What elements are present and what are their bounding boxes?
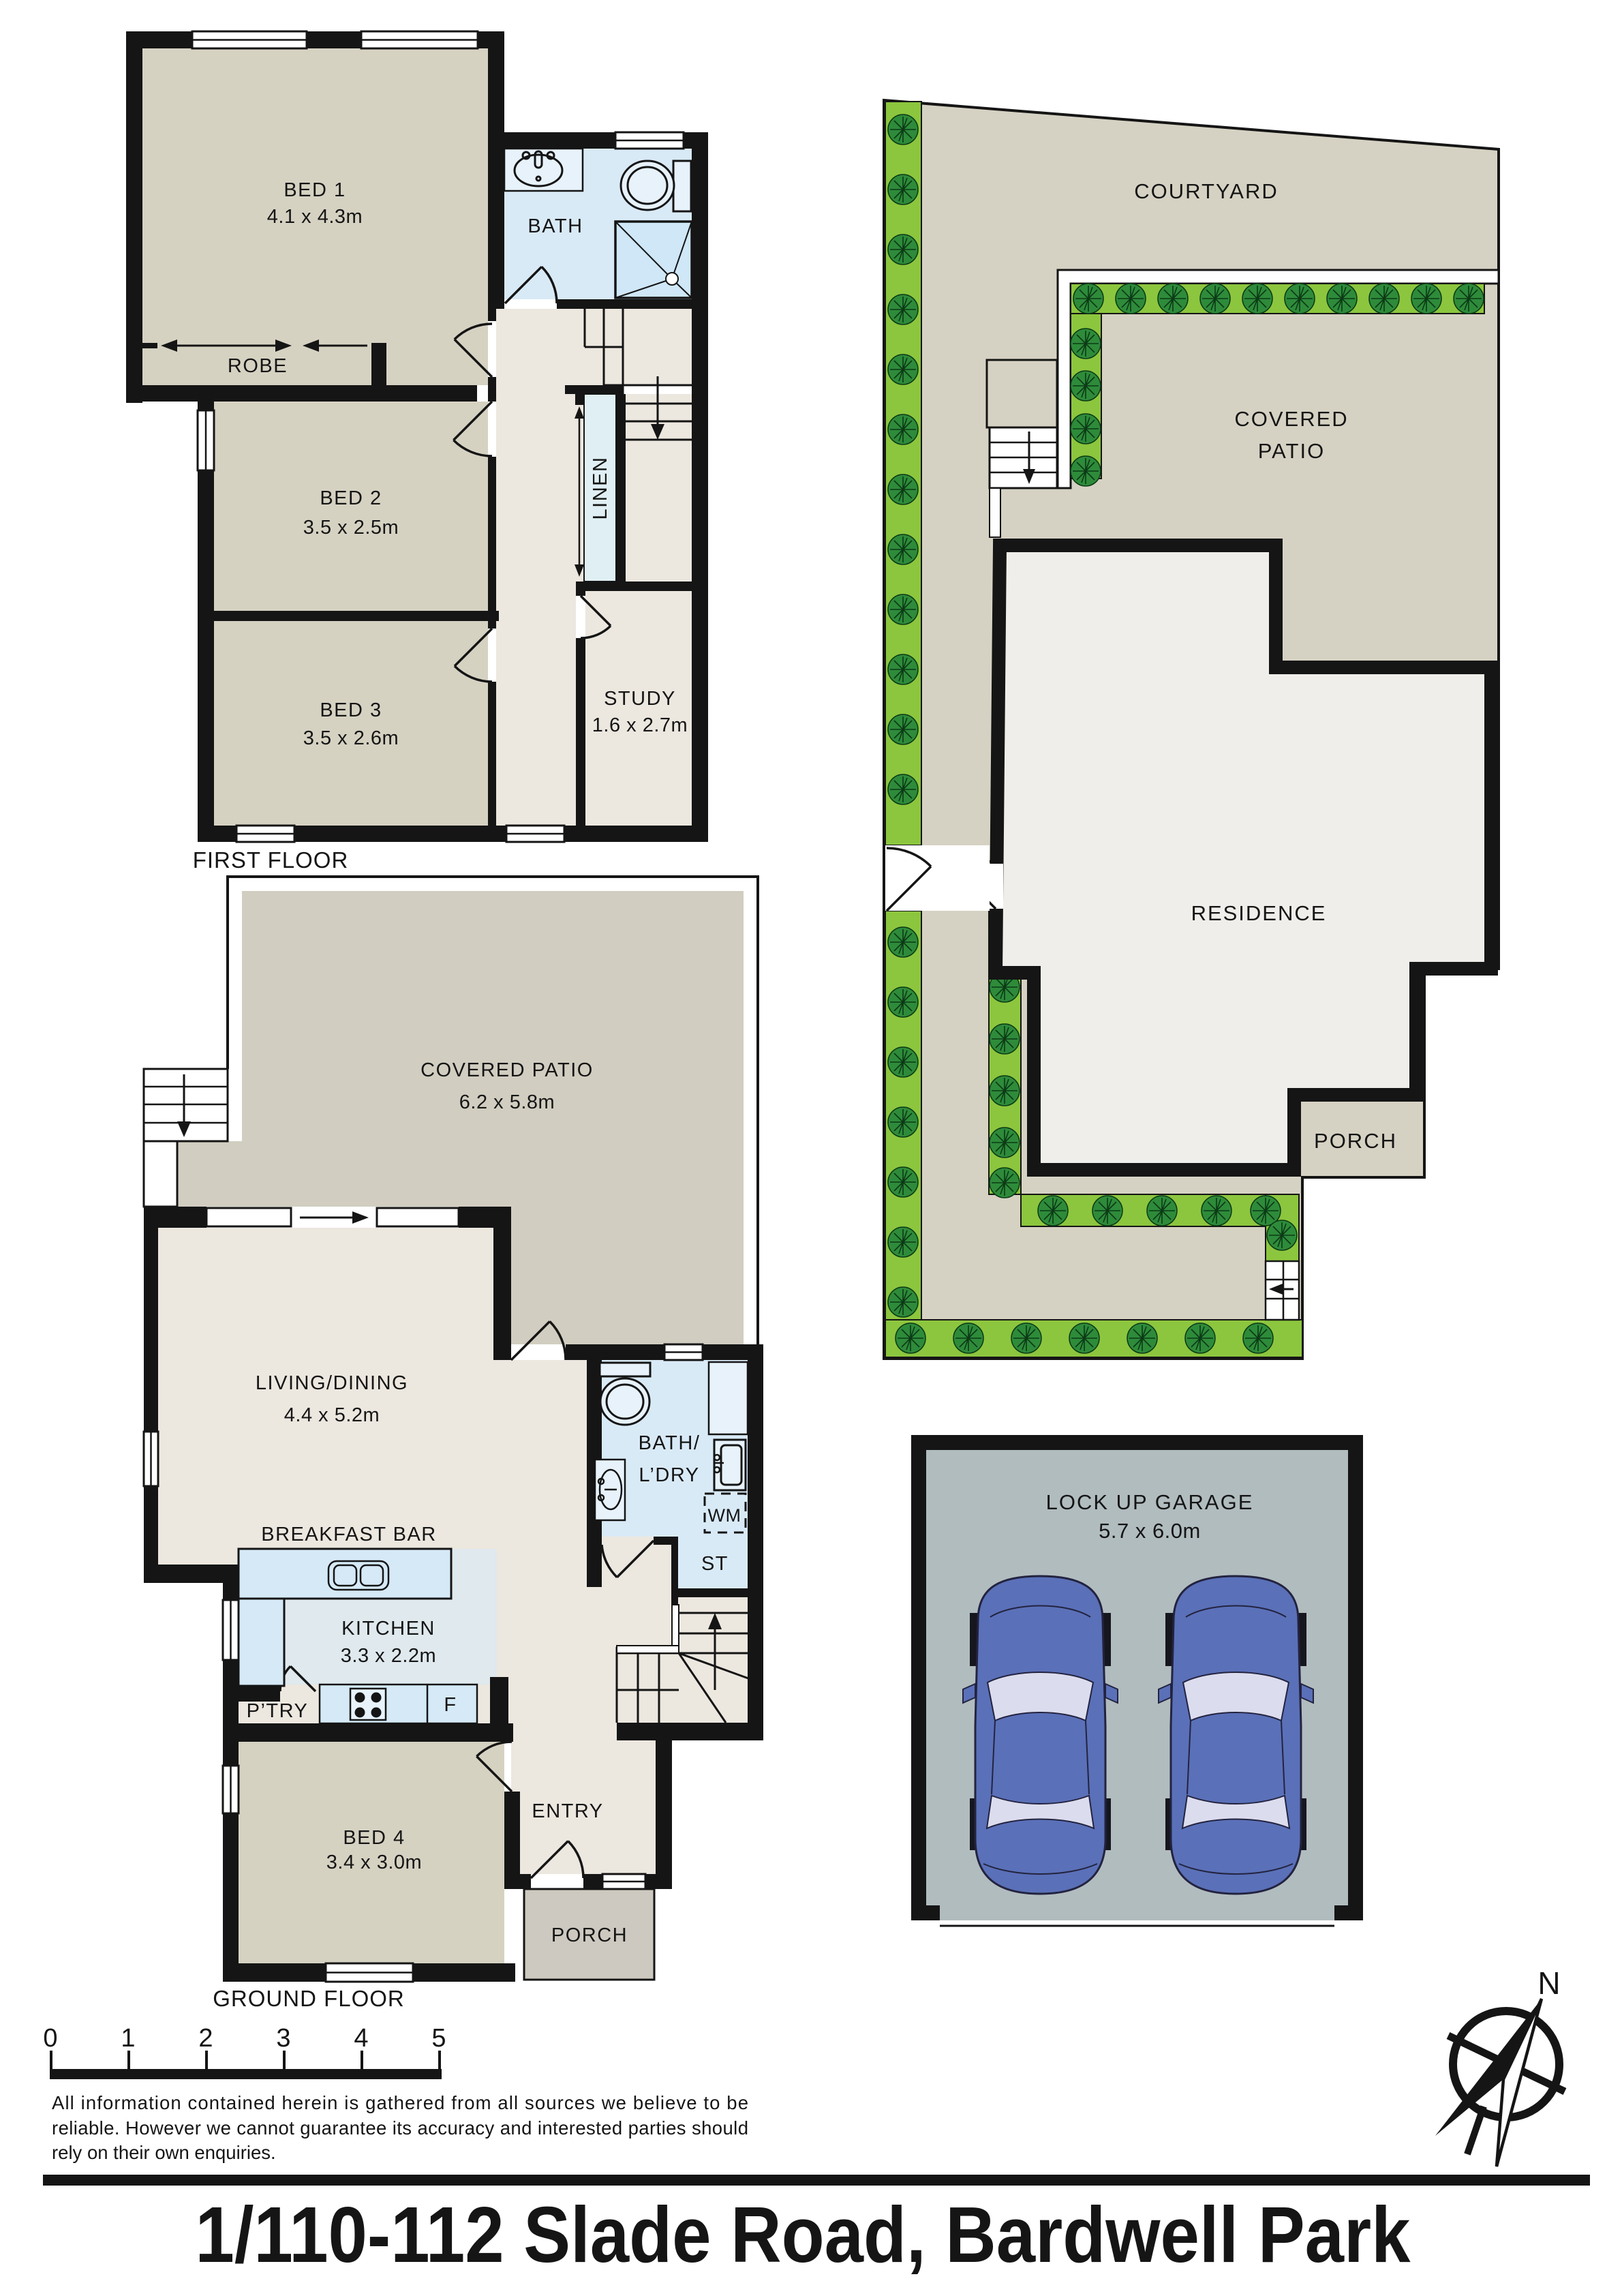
svg-text:STUDY: STUDY bbox=[604, 688, 676, 710]
svg-text:3.3 x 2.2m: 3.3 x 2.2m bbox=[341, 1645, 436, 1667]
svg-text:BED 2: BED 2 bbox=[320, 487, 382, 509]
svg-text:P’TRY: P’TRY bbox=[247, 1700, 309, 1722]
svg-text:rely on their own enquiries.: rely on their own enquiries. bbox=[52, 2142, 276, 2163]
svg-text:LINEN: LINEN bbox=[590, 457, 611, 520]
svg-text:ENTRY: ENTRY bbox=[532, 1800, 603, 1822]
svg-text:5.7 x 6.0m: 5.7 x 6.0m bbox=[1099, 1519, 1201, 1543]
svg-text:L’DRY: L’DRY bbox=[639, 1464, 699, 1486]
svg-text:3.5 x 2.6m: 3.5 x 2.6m bbox=[303, 727, 399, 749]
svg-text:1/110-112 Slade Road, Bardwell: 1/110-112 Slade Road, Bardwell Park bbox=[196, 2190, 1411, 2279]
svg-text:5: 5 bbox=[431, 2024, 446, 2053]
svg-text:COVERED: COVERED bbox=[1234, 407, 1348, 431]
svg-text:BATH/: BATH/ bbox=[639, 1432, 701, 1454]
svg-text:0: 0 bbox=[43, 2024, 57, 2053]
svg-text:1: 1 bbox=[121, 2024, 135, 2053]
svg-text:4.1 x 4.3m: 4.1 x 4.3m bbox=[267, 206, 363, 228]
svg-text:4.4 x 5.2m: 4.4 x 5.2m bbox=[284, 1404, 380, 1426]
svg-text:BATH: BATH bbox=[527, 215, 583, 237]
svg-text:N: N bbox=[1537, 1965, 1560, 2001]
svg-text:KITCHEN: KITCHEN bbox=[341, 1618, 435, 1640]
svg-text:LIVING/DINING: LIVING/DINING bbox=[256, 1372, 408, 1394]
svg-text:COURTYARD: COURTYARD bbox=[1134, 179, 1278, 203]
svg-text:F: F bbox=[444, 1694, 457, 1716]
svg-text:FIRST FLOOR: FIRST FLOOR bbox=[193, 847, 349, 873]
svg-text:LOCK UP GARAGE: LOCK UP GARAGE bbox=[1046, 1490, 1254, 1514]
svg-text:BED 3: BED 3 bbox=[320, 699, 382, 721]
svg-text:PATIO: PATIO bbox=[1258, 439, 1325, 463]
svg-text:3.4 x 3.0m: 3.4 x 3.0m bbox=[326, 1852, 422, 1873]
svg-text:All information contained here: All information contained herein is gath… bbox=[52, 2092, 748, 2113]
svg-text:RESIDENCE: RESIDENCE bbox=[1191, 901, 1327, 925]
svg-text:BED 1: BED 1 bbox=[284, 179, 346, 201]
svg-text:GROUND FLOOR: GROUND FLOOR bbox=[213, 1986, 405, 2011]
svg-text:ST: ST bbox=[701, 1553, 729, 1575]
svg-text:3: 3 bbox=[276, 2024, 290, 2053]
svg-text:3.5 x 2.5m: 3.5 x 2.5m bbox=[303, 517, 399, 539]
svg-text:BREAKFAST BAR: BREAKFAST BAR bbox=[261, 1524, 437, 1545]
svg-text:reliable. However we cannot gu: reliable. However we cannot guarantee it… bbox=[52, 2117, 748, 2139]
svg-text:BED 4: BED 4 bbox=[343, 1827, 405, 1849]
svg-text:WM: WM bbox=[708, 1505, 741, 1526]
svg-text:6.2 x 5.8m: 6.2 x 5.8m bbox=[459, 1091, 555, 1113]
svg-text:2: 2 bbox=[198, 2024, 213, 2053]
svg-text:ROBE: ROBE bbox=[228, 355, 288, 377]
svg-text:PORCH: PORCH bbox=[1314, 1129, 1397, 1153]
svg-text:PORCH: PORCH bbox=[551, 1924, 628, 1946]
svg-text:1.6 x 2.7m: 1.6 x 2.7m bbox=[592, 714, 688, 736]
svg-text:4: 4 bbox=[354, 2024, 368, 2053]
svg-text:COVERED PATIO: COVERED PATIO bbox=[420, 1059, 594, 1081]
